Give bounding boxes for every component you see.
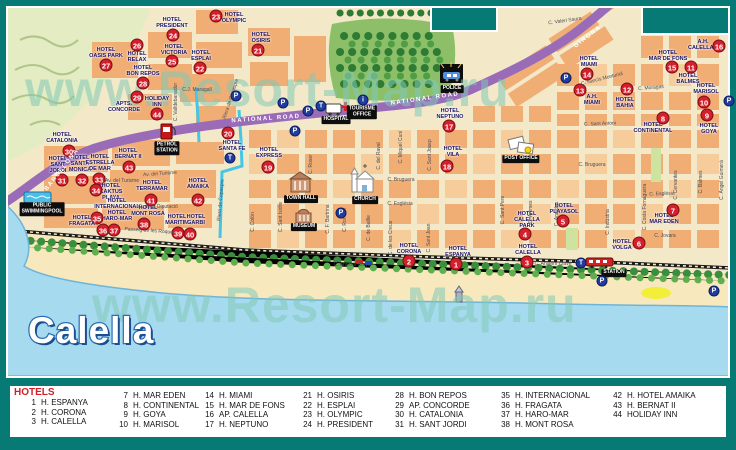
- hotel-marker-1[interactable]: 1: [450, 258, 463, 271]
- legend-column: 42H. HOTEL AMAIKA43H. BERNAT II44HOLIDAY…: [608, 391, 718, 429]
- legend-item-number: 10: [114, 420, 128, 430]
- legend-item: 29AP. CONCORDE: [390, 401, 496, 411]
- hotel-marker-26[interactable]: 26: [131, 39, 144, 52]
- legend-column: 28H. BON REPOS29AP. CONCORDE30H. CATALON…: [390, 391, 496, 429]
- legend-item-number: 2: [22, 408, 36, 418]
- legend-item-number: 7: [114, 391, 128, 401]
- legend-item-name: H. GOYA: [133, 410, 166, 420]
- legend-item-number: 29: [390, 401, 404, 411]
- legend-title: HOTELS: [14, 387, 55, 398]
- legend-item: 42H. HOTEL AMAIKA: [608, 391, 718, 401]
- legend-item: 28H. BON REPOS: [390, 391, 496, 401]
- legend-item-number: 17: [200, 420, 214, 430]
- hotel-marker-19[interactable]: 19: [262, 161, 275, 174]
- hotel-marker-17[interactable]: 17: [443, 120, 456, 133]
- hotel-marker-4[interactable]: 4: [519, 228, 532, 241]
- legend-item-number: 30: [390, 410, 404, 420]
- legend-item-name: H. OSIRIS: [317, 391, 354, 401]
- map-border-notch: [430, 8, 498, 32]
- legend-item: 17H. NEPTUNO: [200, 420, 298, 430]
- legend-item-name: H. CONTINENTAL: [133, 401, 199, 411]
- legend-item: 8H. CONTINENTAL: [114, 401, 200, 411]
- legend-item-name: H. ESPLAI: [317, 401, 355, 411]
- legend-item-number: 16: [200, 410, 214, 420]
- hotel-marker-15[interactable]: 15: [666, 61, 679, 74]
- legend-item: 3H. CALELLA: [22, 417, 114, 427]
- legend-item: 31H. SANT JORDI: [390, 420, 496, 430]
- legend-item: 37H. HARO-MAR: [496, 410, 608, 420]
- legend-item: 2H. CORONA: [22, 408, 114, 418]
- map-title: Calella: [28, 310, 154, 352]
- legend-item: 15H. MAR DE FONS: [200, 401, 298, 411]
- legend-item-name: H. MAR EDEN: [133, 391, 185, 401]
- legend-item-number: 44: [608, 410, 622, 420]
- hotel-marker-14[interactable]: 14: [581, 68, 594, 81]
- hotel-marker-21[interactable]: 21: [252, 44, 265, 57]
- hotel-marker-24[interactable]: 24: [167, 29, 180, 42]
- hotel-marker-23[interactable]: 23: [210, 10, 223, 23]
- legend-item-number: 23: [298, 410, 312, 420]
- hotel-marker-42[interactable]: 42: [192, 194, 205, 207]
- map-border-notch: [641, 8, 728, 35]
- legend-item-number: 36: [496, 401, 510, 411]
- legend-item-name: H. FRAGATA: [515, 401, 562, 411]
- legend-item: 9H. GOYA: [114, 410, 200, 420]
- hotel-marker-6[interactable]: 6: [633, 237, 646, 250]
- legend-item-name: H. CATALONIA: [409, 410, 463, 420]
- legend-item-number: 24: [298, 420, 312, 430]
- legend-item: 43H. BERNAT II: [608, 401, 718, 411]
- legend-item-name: H. CALELLA: [41, 417, 86, 427]
- hotel-marker-40[interactable]: 40: [184, 228, 197, 241]
- legend-item-number: 3: [22, 417, 36, 427]
- hotel-marker-41[interactable]: 41: [145, 194, 158, 207]
- legend-item-number: 43: [608, 401, 622, 411]
- legend-item-number: 1: [22, 398, 36, 408]
- legend-item-name: H. HOTEL AMAIKA: [627, 391, 696, 401]
- taxi-badge[interactable]: T: [576, 258, 587, 269]
- legend-item-number: 42: [608, 391, 622, 401]
- hotel-marker-27[interactable]: 27: [100, 59, 113, 72]
- legend-item: 44HOLIDAY INN: [608, 410, 718, 420]
- hotel-marker-3[interactable]: 3: [521, 256, 534, 269]
- hotel-marker-16[interactable]: 16: [713, 40, 726, 53]
- legend-item-name: H. PRESIDENT: [317, 420, 373, 430]
- legend-item-number: 28: [390, 391, 404, 401]
- hotel-marker-31[interactable]: 31: [56, 174, 69, 187]
- hotel-marker-22[interactable]: 22: [194, 62, 207, 75]
- legend-columns: 1H. ESPANYA2H. CORONA3H. CALELLA7H. MAR …: [10, 386, 726, 429]
- hotel-marker-2[interactable]: 2: [403, 255, 416, 268]
- hotel-marker-43[interactable]: 43: [123, 161, 136, 174]
- legend-item-name: H. HARO-MAR: [515, 410, 569, 420]
- hotel-marker-7[interactable]: 7: [667, 204, 680, 217]
- legend-item-name: AP. CONCORDE: [409, 401, 470, 411]
- legend-item-name: H. OLYMPIC: [317, 410, 363, 420]
- parking-badge[interactable]: P: [561, 73, 572, 84]
- legend-column: 7H. MAR EDEN8H. CONTINENTAL9H. GOYA10H. …: [114, 391, 200, 429]
- parking-badge[interactable]: P: [278, 98, 289, 109]
- hotel-marker-30[interactable]: 30: [63, 145, 76, 158]
- hotel-marker-37[interactable]: 37: [108, 224, 121, 237]
- hotel-marker-44[interactable]: 44: [151, 108, 164, 121]
- tourist-info-badge[interactable]: i: [358, 95, 369, 106]
- legend-item-number: 14: [200, 391, 214, 401]
- hotel-marker-34[interactable]: 34: [90, 184, 103, 197]
- hotel-marker-13[interactable]: 13: [574, 84, 587, 97]
- legend-item-number: 21: [298, 391, 312, 401]
- swimming-pool-icon: [24, 192, 51, 203]
- legend-item: 36H. FRAGATA: [496, 401, 608, 411]
- legend-column: 21H. OSIRIS22H. ESPLAI23H. OLYMPIC24H. P…: [298, 391, 390, 429]
- legend-item: 10H. MARISOL: [114, 420, 200, 430]
- parking-badge[interactable]: P: [709, 286, 720, 297]
- legend-item: 38H. MONT ROSA: [496, 420, 608, 430]
- parking-badge[interactable]: P: [336, 208, 347, 219]
- legend-item: 1H. ESPANYA: [22, 398, 114, 408]
- legend-item-name: AP. CALELLA: [219, 410, 268, 420]
- legend-item-name: H. ESPANYA: [41, 398, 88, 408]
- parking-badge[interactable]: P: [303, 106, 314, 117]
- hotel-marker-5[interactable]: 5: [557, 215, 570, 228]
- legend-item-number: 35: [496, 391, 510, 401]
- parking-badge[interactable]: P: [597, 276, 608, 287]
- legend-item-number: 31: [390, 420, 404, 430]
- parking-badge[interactable]: P: [290, 126, 301, 137]
- legend-item-name: H. INTERNACIONAL: [515, 391, 590, 401]
- hotel-marker-20[interactable]: 20: [222, 127, 235, 140]
- hotels-legend: HOTELS 1H. ESPANYA2H. CORONA3H. CALELLA7…: [10, 386, 726, 437]
- legend-item-number: 8: [114, 401, 128, 411]
- hotel-marker-12[interactable]: 12: [621, 83, 634, 96]
- legend-item: 16AP. CALELLA: [200, 410, 298, 420]
- legend-item: 30H. CATALONIA: [390, 410, 496, 420]
- hotel-marker-10[interactable]: 10: [698, 96, 711, 109]
- legend-item-number: 22: [298, 401, 312, 411]
- legend-item-name: HOLIDAY INN: [627, 410, 677, 420]
- legend-column: 14H. MIAMI15H. MAR DE FONS16AP. CALELLA1…: [200, 391, 298, 429]
- legend-item: 23H. OLYMPIC: [298, 410, 390, 420]
- legend-item-name: H. SANT JORDI: [409, 420, 467, 430]
- hotel-marker-29[interactable]: 29: [131, 91, 144, 104]
- legend-item: 35H. INTERNACIONAL: [496, 391, 608, 401]
- legend-item-name: H. MARISOL: [133, 420, 179, 430]
- legend-item: 22H. ESPLAI: [298, 401, 390, 411]
- legend-item: 24H. PRESIDENT: [298, 420, 390, 430]
- hotel-marker-8[interactable]: 8: [657, 112, 670, 125]
- legend-item-number: 37: [496, 410, 510, 420]
- legend-item: 7H. MAR EDEN: [114, 391, 200, 401]
- legend-column: 35H. INTERNACIONAL36H. FRAGATA37H. HARO-…: [496, 391, 608, 429]
- parking-badge[interactable]: P: [724, 96, 735, 107]
- hotel-marker-11[interactable]: 11: [685, 61, 698, 74]
- legend-item-name: H. NEPTUNO: [219, 420, 268, 430]
- hotel-marker-32[interactable]: 32: [76, 174, 89, 187]
- legend-item: 14H. MIAMI: [200, 391, 298, 401]
- legend-item-name: H. MAR DE FONS: [219, 401, 285, 411]
- parking-badge[interactable]: P: [231, 91, 242, 102]
- resort-map-screen: www.Resort-Map.ru www.Resort-Map.ru Cale…: [0, 0, 736, 450]
- hotel-marker-28[interactable]: 28: [137, 77, 150, 90]
- legend-item-name: H. BON REPOS: [409, 391, 467, 401]
- taxi-badge[interactable]: T: [316, 101, 327, 112]
- highlight-ellipse: [641, 287, 671, 299]
- hotel-marker-25[interactable]: 25: [166, 55, 179, 68]
- hotel-marker-38[interactable]: 38: [138, 218, 151, 231]
- legend-item-name: H. MONT ROSA: [515, 420, 574, 430]
- taxi-badge[interactable]: T: [225, 153, 236, 164]
- legend-item-name: H. CORONA: [41, 408, 86, 418]
- legend-item-name: H. BERNAT II: [627, 401, 676, 411]
- legend-item-number: 9: [114, 410, 128, 420]
- legend-item-number: 15: [200, 401, 214, 411]
- hotel-marker-18[interactable]: 18: [441, 160, 454, 173]
- legend-item: 21H. OSIRIS: [298, 391, 390, 401]
- hotel-marker-9[interactable]: 9: [701, 109, 714, 122]
- police-car-icon: [440, 62, 463, 83]
- legend-item-number: 38: [496, 420, 510, 430]
- legend-item-name: H. MIAMI: [219, 391, 252, 401]
